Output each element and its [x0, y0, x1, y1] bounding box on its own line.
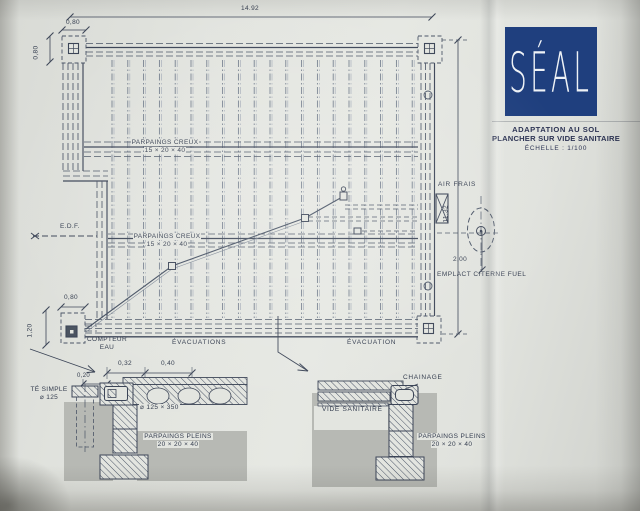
title-line1: ADAPTATION AU SOL	[483, 125, 629, 134]
label-parpaings-pleins-left: PARPAINGS PLEINS 20 × 20 × 40	[139, 433, 217, 448]
title-line2: PLANCHER SUR VIDE SANITAIRE	[483, 134, 629, 143]
title-block: ADAPTATION AU SOL PLANCHER SUR VIDE SANI…	[483, 125, 629, 153]
label-emplacement-citerne: EMPLACT CITERNE FUEL	[437, 271, 526, 279]
label-parpaings-creux-2: PARPAINGS CREUX 15 × 20 × 40	[128, 233, 206, 248]
label-parpaings-creux-1: PARPAINGS CREUX 15 × 20 × 40	[126, 139, 204, 154]
dim-total-width: 14.92	[234, 5, 266, 13]
dim-corner-height: 0,80	[32, 46, 40, 60]
label-vide-sanitaire: VIDE SANITAIRE	[322, 406, 383, 414]
seal-logo: SÉAL	[505, 27, 597, 116]
titleblock-divider	[492, 121, 640, 122]
dim-total-height: 11,32	[442, 205, 450, 223]
label-slab-hourdis: ⌀ 125 × 350	[139, 404, 180, 412]
label-evacuations: ÉVACUATIONS	[172, 339, 226, 347]
seal-logo-text: SÉAL	[509, 41, 592, 106]
label-edf: E.D.F.	[60, 223, 80, 231]
label-evacuation: ÉVACUATION	[347, 339, 396, 347]
plan-corner-posts	[61, 36, 442, 343]
label-air-frais: AIR FRAIS	[438, 181, 476, 189]
dim-detail-020: 0,20	[77, 373, 90, 381]
dim-meter-width: 0,80	[58, 294, 84, 302]
plan-floor-joists	[112, 60, 414, 318]
dim-meter-height: 1,20	[26, 324, 34, 338]
dim-detail-040: 0,40	[155, 360, 181, 368]
label-compteur-eau: COMPTEUR EAU	[84, 336, 130, 351]
blueprint-photo: 14.92 0,80 0,80 PARPAINGS CREUX 15 × 20 …	[0, 0, 640, 511]
dim-tank-offset: 2,00	[453, 256, 467, 264]
label-chainage: CHAINAGE	[403, 374, 443, 382]
dim-detail-032: 0,32	[112, 360, 138, 368]
label-parpaings-pleins-right: PARPAINGS PLEINS 20 × 20 × 40	[414, 433, 490, 448]
plan-walls	[31, 44, 435, 337]
dim-corner-width: 0,80	[60, 19, 86, 27]
label-te-simple: TÉ SIMPLE ⌀ 125	[26, 386, 72, 401]
title-scale: ÉCHELLE : 1/100	[483, 144, 629, 153]
